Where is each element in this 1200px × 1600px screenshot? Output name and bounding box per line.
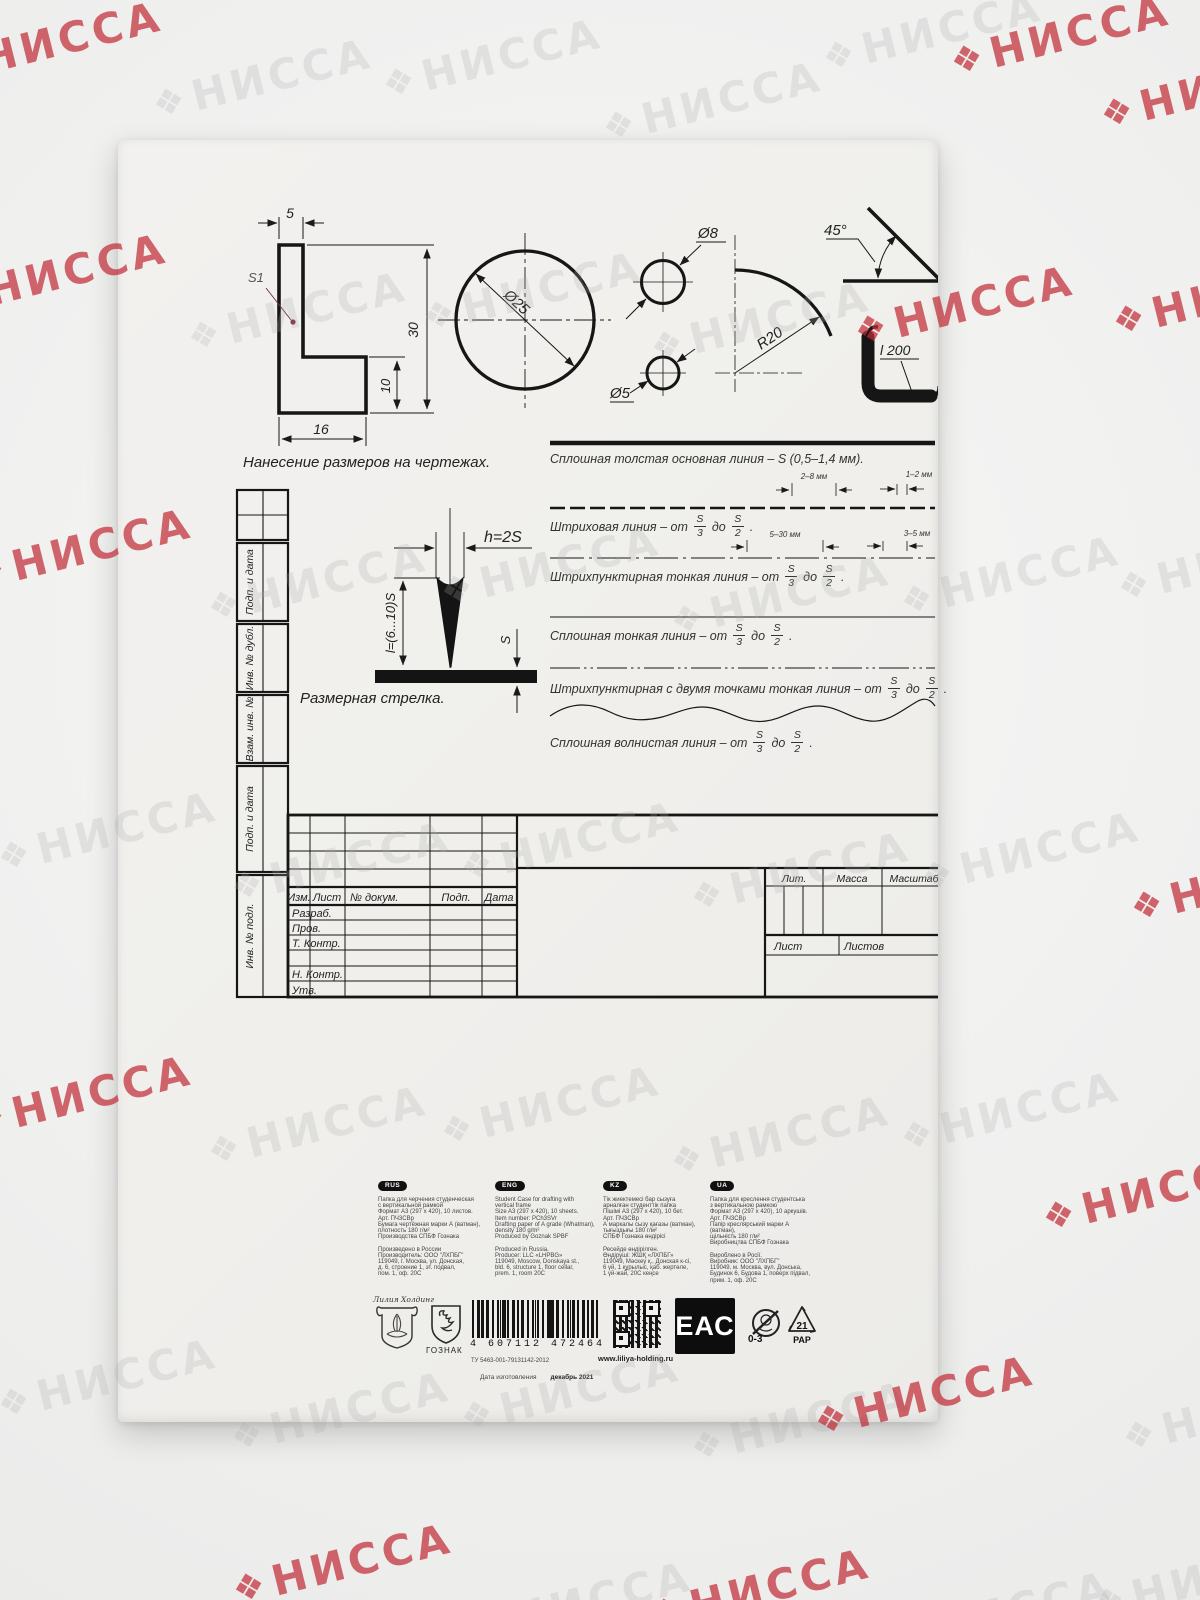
tb-masshtab: Масштаб (889, 873, 938, 885)
caption-text: . (750, 520, 753, 534)
watermark-logo-icon: ❖ (148, 79, 189, 127)
circle-d5-figure: Ø5 (609, 349, 695, 402)
strip-label-inv-podl: Инв. № подл. (244, 903, 256, 968)
info-text-rus: Папка для черчения студенческая с вертик… (378, 1197, 484, 1278)
dimension-arrow-figure: h=2S l=(6...10)S S (375, 508, 537, 713)
caption-thin-solid: Сплошная тонкая линия – от S3 до S2 . (550, 623, 793, 648)
caption-text: Сплошная волнистая линия – от (550, 736, 747, 750)
product-photo: 5 30 10 16 S1 Ø25 (0, 0, 1200, 1600)
tb-col-dokum: № докум. (350, 892, 398, 904)
strip-label-vzam-inv: Взам. инв. № (244, 697, 256, 762)
paper-sheet: 5 30 10 16 S1 Ø25 (118, 140, 938, 1422)
info-column-ua: UA Папка для креслення студентська з вер… (710, 1174, 816, 1284)
ann-2-8: 2–8 мм (800, 472, 828, 481)
tb-row-utv: Утв. (291, 985, 317, 997)
ann-5-30: 5–30 мм (770, 530, 802, 539)
dim-5: 5 (286, 205, 294, 221)
age-0-3-sign: 0-3 (744, 1306, 784, 1346)
dash-dot-annotations (731, 540, 923, 552)
lang-badge-eng: ENG (495, 1181, 525, 1191)
watermark-logo-icon: ❖ (1108, 296, 1149, 344)
label-l200: l 200 (880, 342, 911, 358)
watermark: ❖НИССА (1107, 246, 1200, 348)
tu-number: ТУ 5463-001-79131142-2012 (471, 1358, 549, 1364)
ann-3-5: 3–5 мм (904, 529, 931, 538)
watermark-logo-icon: ❖ (1088, 1579, 1129, 1600)
caption-text: до (751, 629, 765, 643)
surface-dot (290, 319, 295, 324)
qr-code (613, 1300, 661, 1348)
info-text-eng: Student Case for drafting with vertical … (495, 1197, 601, 1278)
lang-badge-ua: UA (710, 1181, 734, 1191)
watermark: ❖НИССА (1125, 832, 1200, 934)
info-text-ua: Папка для креслення студентська з вертик… (710, 1197, 816, 1284)
arrow-caption: Размерная стрелка. (300, 690, 445, 707)
watermark: ❖НИССА (377, 9, 607, 111)
caption-text: Штрихпунктирная с двумя точками тонкая л… (550, 682, 882, 696)
fraction: S3 (785, 564, 797, 589)
liliya-holding-script: Лилия Холдинг (373, 1295, 434, 1304)
tb-col-izm: Изм. (287, 892, 310, 904)
info-column-rus: RUS Папка для черчения студенческая с ве… (378, 1174, 484, 1278)
manufacture-date: Дата изготовлениядекабрь 2021 (480, 1374, 593, 1381)
dim-16: 16 (313, 421, 329, 437)
label-l-formula: l=(6...10)S (383, 593, 398, 654)
profile-l200-figure: l 200 (868, 327, 938, 399)
watermark-logo-icon: ❖ (0, 549, 10, 597)
strip-label-inv-dubl: Инв. № дубл. (244, 626, 256, 691)
dashed-line-annotations (776, 483, 924, 496)
frame-left-strip: Подп. и дата Инв. № дубл. Взам. инв. № П… (237, 490, 288, 997)
pap-label: PAP (793, 1335, 811, 1345)
watermark: ❖НИССА (227, 1514, 457, 1600)
arc-r20-figure: R20 (715, 235, 831, 392)
circle-d25-figure: Ø25 (438, 233, 611, 408)
ann-1-2: 1–2 мм (906, 470, 933, 479)
fraction: S3 (733, 623, 745, 648)
dim-10: 10 (378, 378, 393, 393)
watermark: ❖НИССА (1087, 1529, 1200, 1600)
caption-text: . (789, 629, 792, 643)
tb-col-data: Дата (482, 892, 513, 904)
watermark: ❖НИССА (887, 1562, 1117, 1600)
figures-caption: Нанесение размеров на чертежах. (243, 454, 490, 471)
watermark-logo-icon: ❖ (946, 36, 987, 84)
watermark: ❖НИССА (1117, 1362, 1200, 1464)
watermark: ❖НИССА (467, 1552, 697, 1600)
barcode-digits: 4 607112 472464 (470, 1339, 605, 1350)
fraction: S2 (823, 564, 835, 589)
caption-text: . (809, 736, 812, 750)
caption-text: до (803, 570, 817, 584)
caption-text: . (944, 682, 947, 696)
watermark: ❖НИССА (915, 802, 1145, 904)
watermark-logo-icon: ❖ (0, 832, 35, 880)
watermark-logo-icon: ❖ (1113, 562, 1154, 610)
watermark-logo-icon: ❖ (0, 1379, 35, 1427)
tb-row-razrab: Разраб. (292, 908, 332, 920)
label-45deg: 45° (824, 222, 847, 239)
tb-listov: Листов (843, 941, 884, 953)
watermark: ❖НИССА (645, 1539, 875, 1600)
watermark-logo-icon: ❖ (1118, 1412, 1159, 1460)
caption-dash-dot: Штрихпунктирная тонкая линия – от S3 до … (550, 564, 845, 589)
label-h2s: h=2S (484, 529, 522, 546)
watermark-logo-icon: ❖ (818, 32, 859, 80)
recycle-pap-sign: 21 PAP (786, 1304, 818, 1346)
circle-d8-figure: Ø8 (626, 225, 726, 319)
watermark: ❖НИССА (817, 0, 1047, 83)
website-url: www.liliya-holding.ru (598, 1354, 673, 1363)
watermark-logo-icon: ❖ (228, 1564, 269, 1600)
caption-text: . (841, 570, 844, 584)
lang-badge-rus: RUS (378, 1181, 407, 1191)
watermark: ❖НИССА (147, 29, 377, 131)
l-shape-figure: 5 30 10 16 S1 (248, 205, 434, 446)
fraction: S2 (732, 514, 744, 539)
watermark-logo-icon: ❖ (1096, 89, 1137, 137)
caption-text: Сплошная толстая основная линия – S (0,5… (550, 452, 864, 466)
tb-lit: Лит. (781, 873, 807, 885)
fraction: S2 (926, 676, 938, 701)
caption-dash-dot-dot: Штрихпунктирная с двумя точками тонкая л… (550, 676, 947, 701)
fraction: S3 (888, 676, 900, 701)
label-s: S (498, 635, 513, 644)
watermark-logo-icon: ❖ (1126, 882, 1167, 930)
date-label: Дата изготовления (480, 1374, 536, 1381)
label-d25: Ø25 (500, 286, 534, 319)
info-column-kz: KZ Тік жиектемесі бар сызуға арналған ст… (603, 1174, 709, 1278)
watermark-logo-icon: ❖ (0, 1096, 10, 1144)
dim-30: 30 (405, 322, 421, 338)
angle-45-figure: 45° (824, 208, 938, 282)
caption-wavy: Сплошная волнистая линия – от S3 до S2 . (550, 730, 813, 755)
caption-text: до (712, 520, 726, 534)
title-block: Изм. Лист № докум. Подп. Дата Разраб. Пр… (287, 815, 938, 997)
caption-text: до (771, 736, 785, 750)
goznak-logo (428, 1304, 464, 1344)
tb-list: Лист (773, 941, 802, 953)
tb-massa: Масса (836, 873, 867, 885)
tb-row-nkontr: Н. Контр. (292, 969, 343, 981)
fraction: S2 (791, 730, 803, 755)
watermark-logo-icon: ❖ (378, 59, 419, 107)
wavy-line (550, 699, 935, 721)
fraction: S2 (771, 623, 783, 648)
label-d8: Ø8 (697, 225, 719, 242)
watermark: ❖НИССА (0, 0, 167, 93)
caption-text: Штрихпунктирная тонкая линия – от (550, 570, 779, 584)
info-text-kz: Тік жиектемесі бар сызуға арналған студе… (603, 1197, 709, 1278)
caption-text: до (906, 682, 920, 696)
watermark: ❖НИССА (1112, 512, 1200, 614)
fraction: S3 (694, 514, 706, 539)
info-column-eng: ENG Student Case for drafting with verti… (495, 1174, 601, 1278)
tb-row-tkontr: Т. Контр. (292, 938, 341, 950)
eac-mark: ЕАС (675, 1298, 735, 1354)
label-r20: R20 (754, 323, 787, 353)
watermark-logo-icon: ❖ (686, 1422, 727, 1470)
barcode (472, 1300, 598, 1338)
tb-row-prov: Пров. (292, 923, 321, 935)
watermark-logo-icon: ❖ (1038, 1192, 1079, 1240)
goznak-label: ГОЗНАК (426, 1346, 463, 1355)
label-d5: Ø5 (609, 385, 631, 402)
caption-text: Штриховая линия – от (550, 520, 688, 534)
liliya-holding-crest (375, 1304, 419, 1350)
fraction: S3 (753, 730, 765, 755)
strip-label-podp-data-1: Подп. и дата (244, 549, 256, 615)
watermark: ❖НИССА (597, 52, 827, 154)
date-value: декабрь 2021 (550, 1374, 593, 1381)
watermark: ❖НИССА (1095, 39, 1200, 141)
pap-number: 21 (796, 1321, 808, 1332)
label-s1: S1 (248, 270, 264, 285)
strip-label-podp-data-2: Подп. и дата (244, 786, 256, 852)
lang-badge-kz: KZ (603, 1181, 627, 1191)
caption-dashed: Штриховая линия – от S3 до S2 . (550, 514, 753, 539)
age-0-3-text: 0-3 (748, 1334, 763, 1345)
tb-col-list: Лист (312, 892, 341, 904)
watermark: ❖НИССА (945, 0, 1175, 87)
watermark-logo-icon: ❖ (646, 1589, 687, 1600)
caption-text: Сплошная тонкая линия – от (550, 629, 727, 643)
tb-col-podp: Подп. (441, 892, 470, 904)
watermark: ❖НИССА (1037, 1142, 1200, 1244)
caption-thick-solid: Сплошная толстая основная линия – S (0,5… (550, 452, 864, 466)
